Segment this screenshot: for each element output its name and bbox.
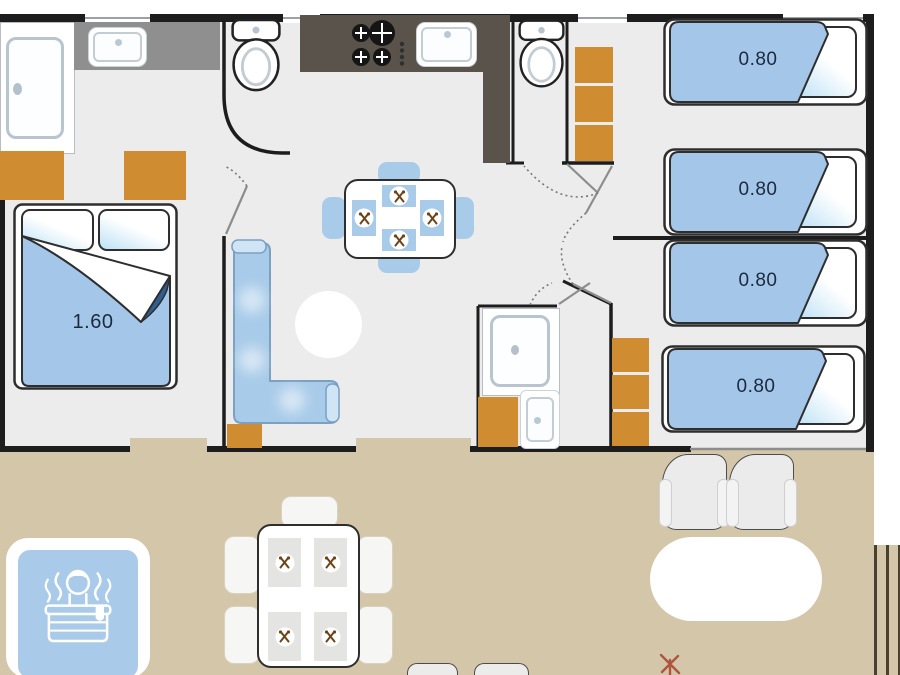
placemat — [382, 229, 416, 251]
dresser-master-left — [0, 151, 64, 200]
kitchen-sink-icon — [416, 22, 477, 67]
cutlery-icon — [324, 556, 338, 570]
terrace-low-table — [650, 537, 822, 621]
placemat — [314, 612, 347, 661]
deck-chair-2 — [729, 454, 794, 530]
deck-chair-1 — [662, 454, 727, 530]
single-bed-3: 0.80 — [663, 239, 868, 327]
cutlery-icon — [392, 189, 406, 203]
single-bed-size-label: 0.80 — [708, 49, 808, 71]
shower-room-tray — [482, 308, 560, 396]
placemat — [314, 538, 347, 587]
single-bed-4: 0.80 — [661, 345, 866, 433]
outdoor-chair-right-2 — [357, 606, 393, 664]
flower-mark-icon — [656, 651, 684, 675]
outdoor-dining-table — [257, 524, 360, 668]
floor-plan: 1.60 — [0, 0, 900, 675]
placemat — [382, 185, 416, 207]
double-bed: 1.60 — [13, 203, 178, 390]
outdoor-chair-left-1 — [224, 536, 260, 594]
single-bed-size-label: 0.80 — [708, 179, 808, 201]
shower-room-sink-icon — [520, 390, 560, 449]
toilet-icon — [227, 17, 285, 93]
spa-person-icon — [31, 562, 125, 666]
outdoor-chair-right-1 — [357, 536, 393, 594]
dresser-master-right — [124, 151, 186, 200]
toilet-icon — [516, 16, 567, 91]
stove-knobs — [400, 42, 404, 66]
plate — [321, 553, 340, 572]
outdoor-chair-partial-1 — [407, 663, 458, 675]
shower-room-cabinet — [478, 397, 518, 447]
stove-icon — [345, 19, 407, 69]
sofa-side-cabinet — [227, 424, 262, 448]
single-bed-size-label: 0.80 — [708, 270, 808, 292]
hot-tub-water — [18, 550, 138, 675]
wardrobe-bedroom — [612, 338, 649, 446]
single-bed-2: 0.80 — [663, 148, 868, 236]
pillow — [99, 210, 169, 250]
shower-icon — [490, 315, 550, 387]
dining-chair-left — [322, 197, 346, 239]
cutlery-icon — [278, 556, 292, 570]
plate — [321, 627, 340, 646]
plate — [390, 231, 409, 250]
single-bed-size-label: 0.80 — [706, 376, 806, 398]
placemat — [268, 612, 301, 661]
round-rug — [295, 291, 362, 358]
wardrobe-hall — [575, 47, 613, 161]
sink-icon — [88, 27, 147, 67]
plate — [355, 209, 374, 228]
cutlery-icon — [324, 630, 338, 644]
kitchen-counter-return — [483, 72, 510, 163]
cutlery-icon — [425, 211, 439, 225]
plate — [423, 209, 442, 228]
indoor-dining-table — [344, 179, 456, 259]
double-bed-size-label: 1.60 — [43, 311, 143, 334]
shower-master — [0, 22, 75, 154]
placemat — [268, 538, 301, 587]
cutlery-icon — [392, 233, 406, 247]
outdoor-chair-partial-2 — [474, 663, 529, 675]
outdoor-chair-left-2 — [224, 606, 260, 664]
plate — [275, 553, 294, 572]
placemat — [420, 200, 444, 236]
single-bed-1: 0.80 — [663, 18, 868, 106]
cutlery-icon — [357, 211, 371, 225]
hot-tub — [6, 538, 150, 675]
plate — [390, 187, 409, 206]
cutlery-icon — [278, 630, 292, 644]
placemat — [352, 200, 376, 236]
plate — [275, 627, 294, 646]
